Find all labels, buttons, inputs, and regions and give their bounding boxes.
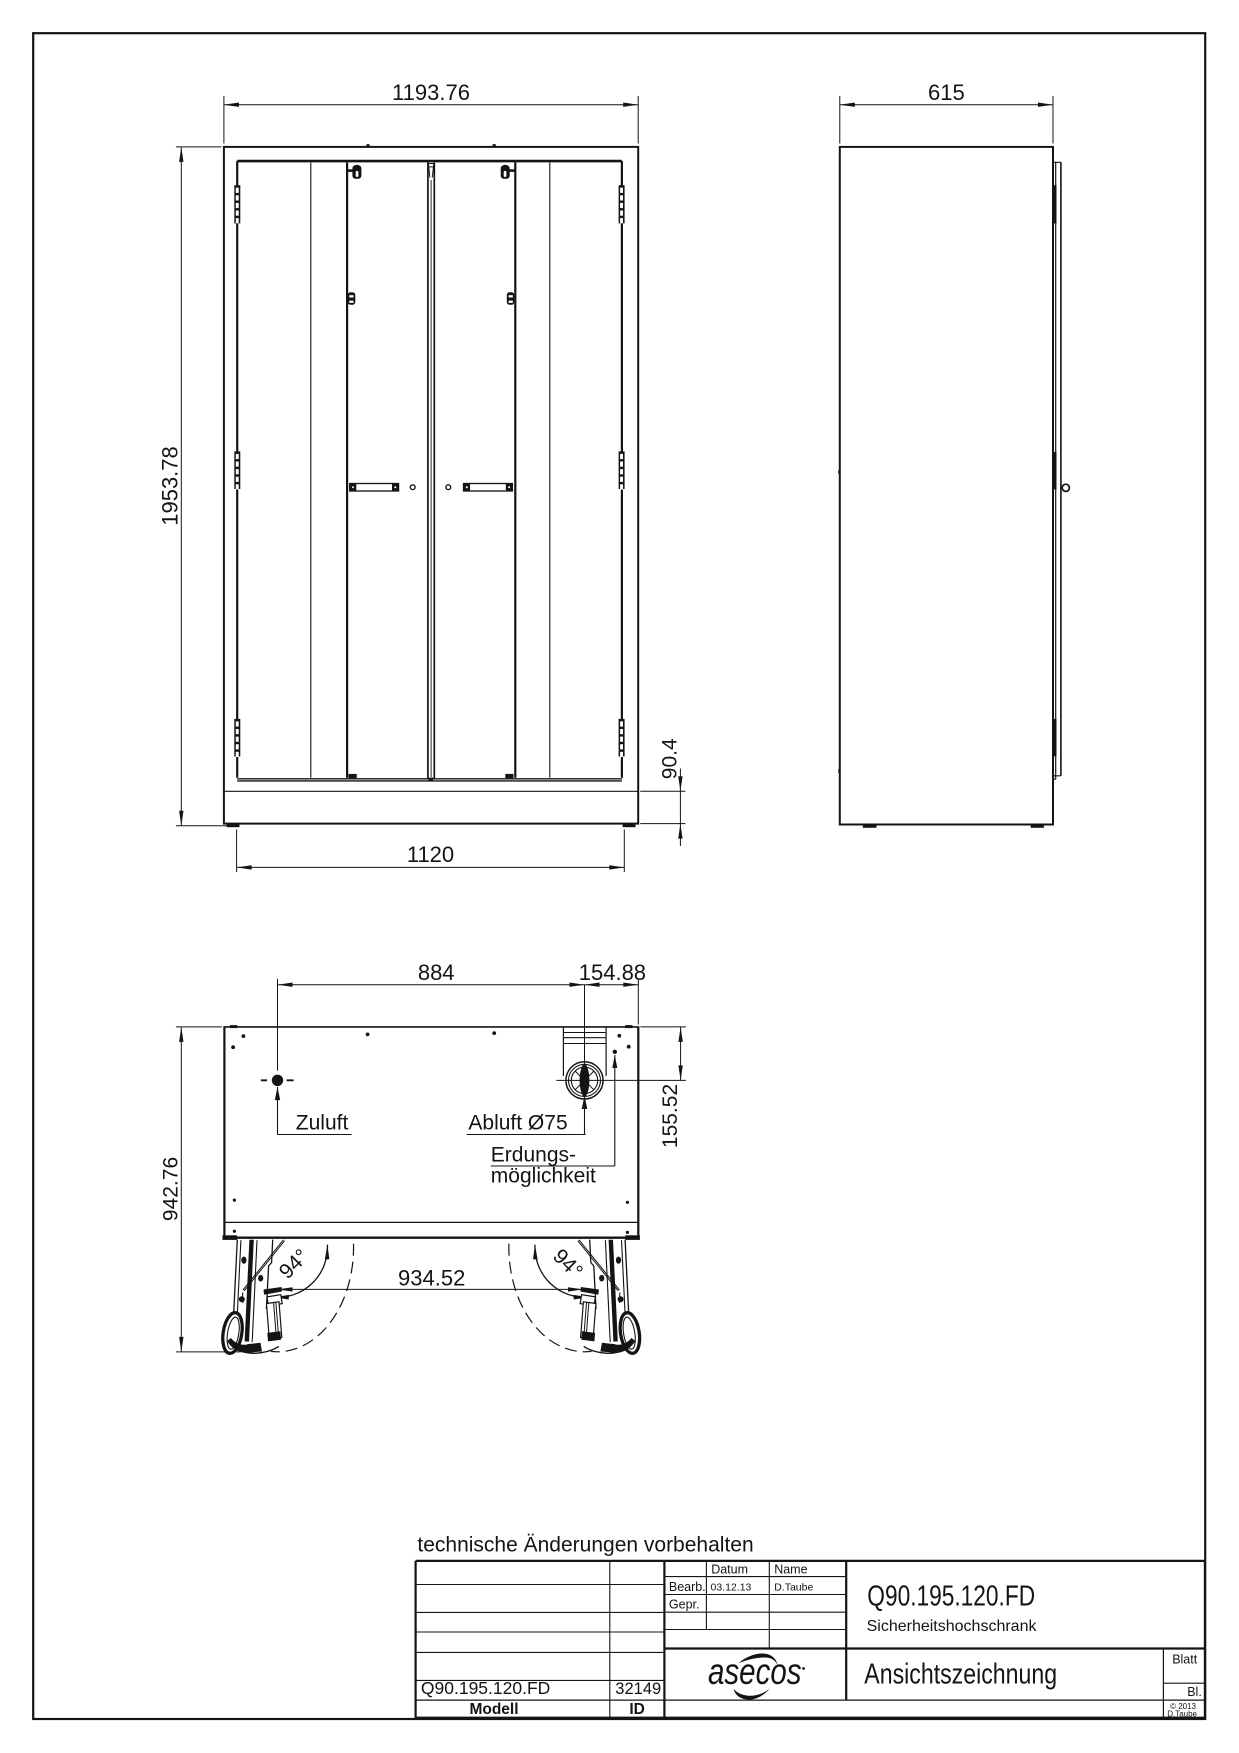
svg-text:32149: 32149: [615, 1680, 661, 1698]
svg-text:Blatt: Blatt: [1172, 1653, 1198, 1667]
svg-text:Gepr.: Gepr.: [669, 1598, 700, 1612]
svg-text:Bearb.: Bearb.: [669, 1580, 706, 1594]
svg-text:1120: 1120: [407, 842, 454, 867]
svg-text:D.Taube: D.Taube: [774, 1582, 813, 1594]
svg-text:Bl.: Bl.: [1187, 1685, 1202, 1699]
svg-text:Datum: Datum: [711, 1563, 748, 1577]
svg-text:Erdungs-: Erdungs-: [491, 1144, 576, 1167]
svg-text:D.Taube: D.Taube: [1167, 1710, 1197, 1719]
svg-text:942.76: 942.76: [160, 1157, 183, 1221]
svg-text:Q90.195.120.FD: Q90.195.120.FD: [867, 1581, 1035, 1613]
svg-text:884: 884: [418, 960, 455, 985]
svg-text:154.88: 154.88: [579, 960, 646, 985]
svg-text:Abluft Ø75: Abluft Ø75: [468, 1111, 567, 1134]
svg-text:934.52: 934.52: [398, 1265, 465, 1290]
svg-text:technische Änderungen vorbehal: technische Änderungen vorbehalten: [417, 1534, 753, 1557]
svg-text:1193.76: 1193.76: [392, 80, 470, 105]
svg-text:ID: ID: [629, 1701, 645, 1718]
svg-text:90.4: 90.4: [659, 738, 682, 779]
svg-text:Q90.195.120.FD: Q90.195.120.FD: [421, 1678, 550, 1698]
svg-text:Name: Name: [774, 1563, 807, 1577]
svg-text:03.12.13: 03.12.13: [711, 1582, 752, 1594]
svg-text:155.52: 155.52: [659, 1084, 682, 1148]
svg-text:Zuluft: Zuluft: [296, 1111, 349, 1134]
svg-text:Modell: Modell: [469, 1701, 518, 1718]
svg-text:1953.78: 1953.78: [158, 446, 183, 526]
svg-text:Sicherheitshochschrank: Sicherheitshochschrank: [867, 1618, 1038, 1635]
svg-text:möglichkeit: möglichkeit: [491, 1164, 596, 1187]
svg-text:Ansichtszeichnung: Ansichtszeichnung: [864, 1659, 1057, 1691]
svg-text:615: 615: [928, 80, 965, 105]
